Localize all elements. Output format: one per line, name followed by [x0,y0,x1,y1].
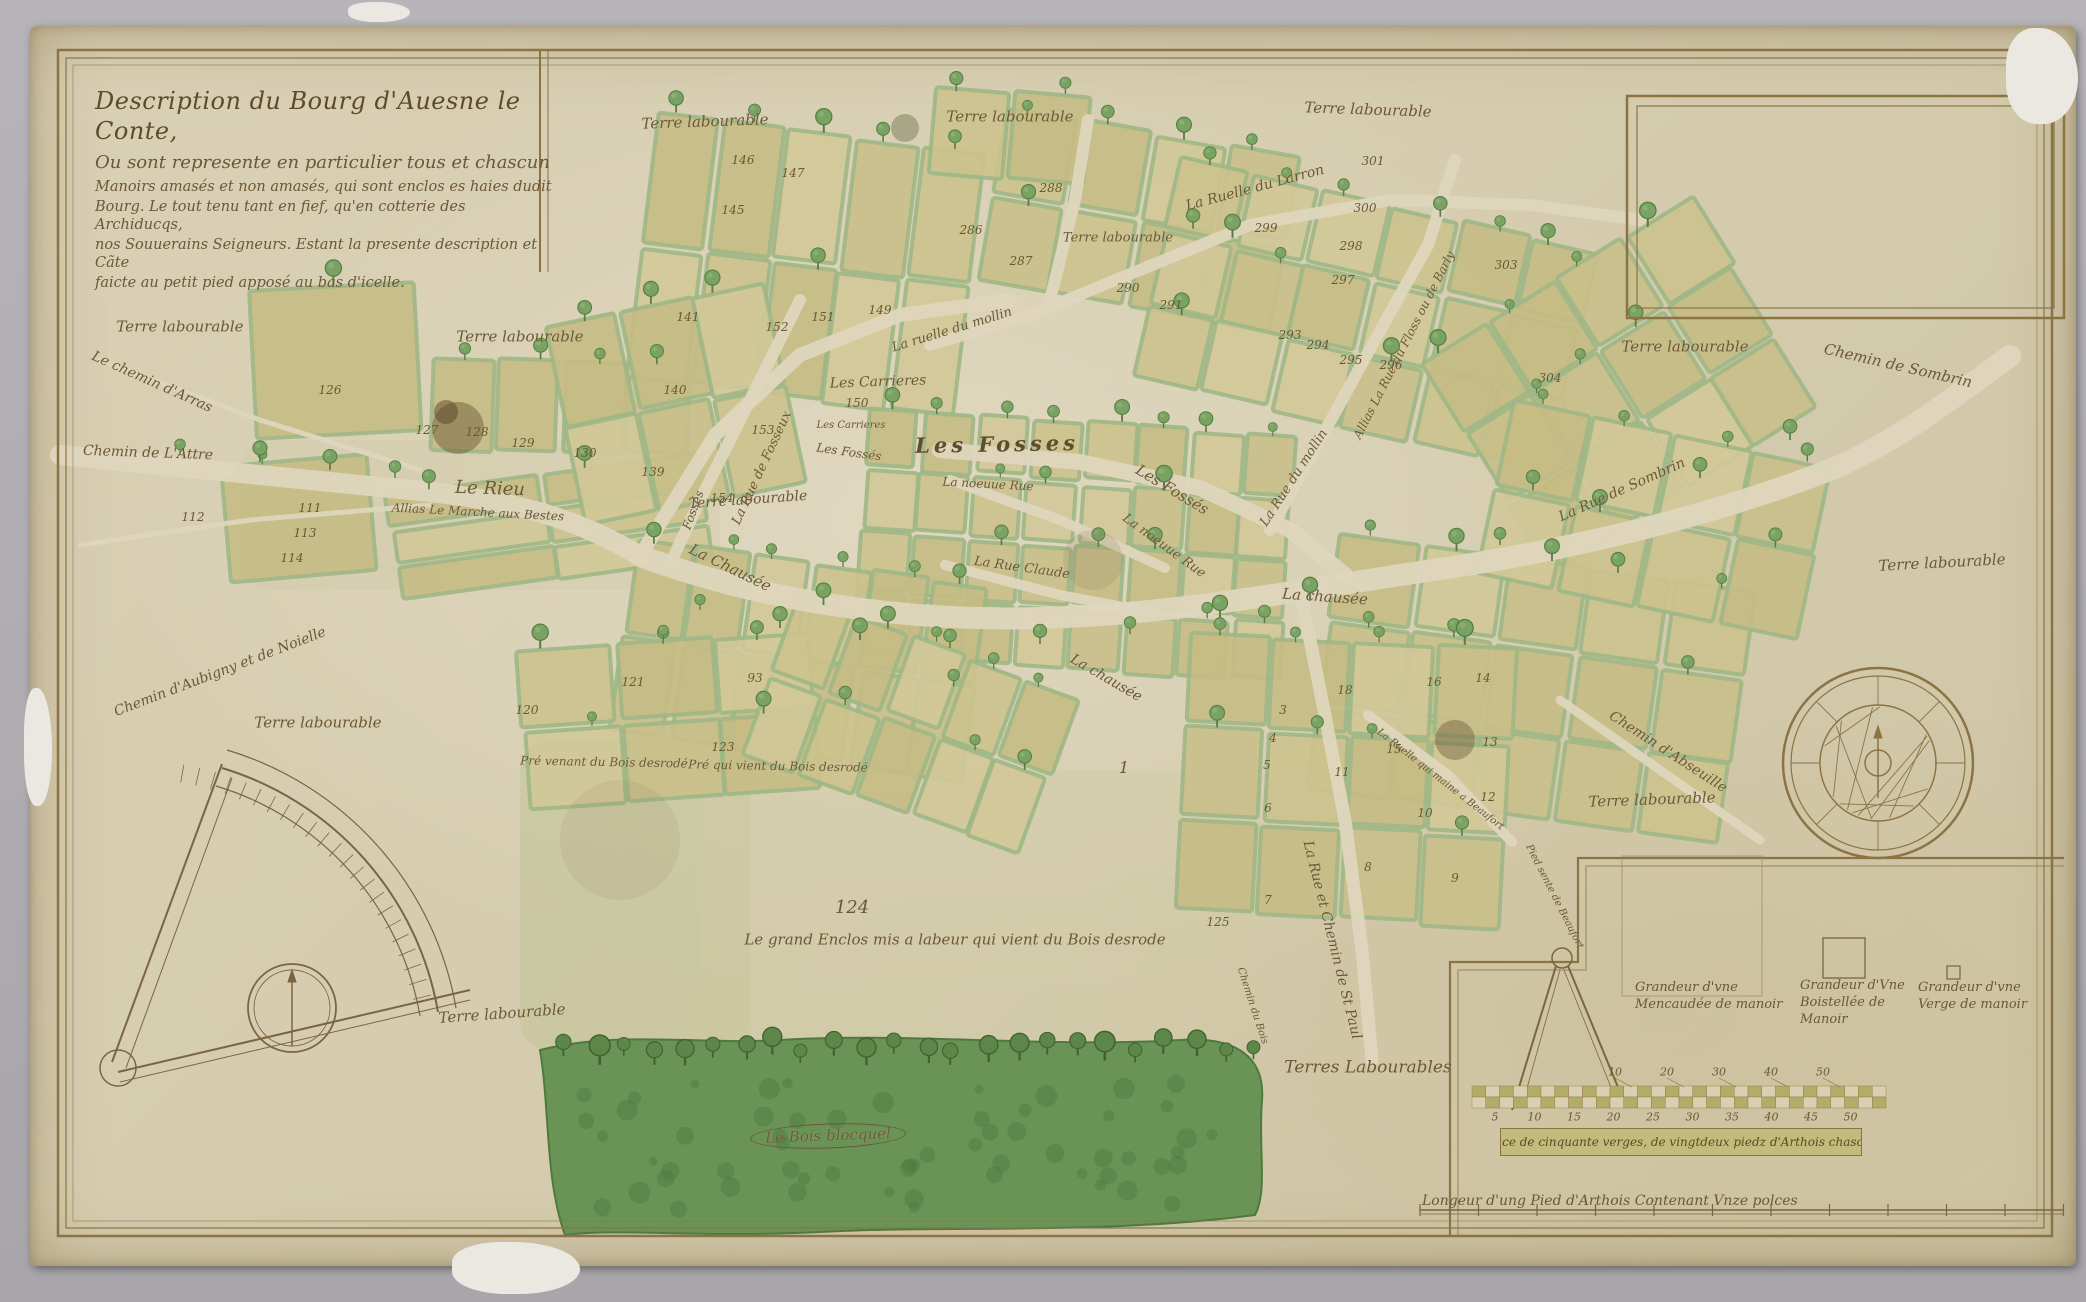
scale-bottom-tick: 50 [1844,1111,1858,1124]
parcel-number: 13 [1482,736,1497,748]
torn-paper-patch [24,688,52,806]
parcel-number: 146 [732,154,755,166]
scale-bottom-tick: 10 [1528,1111,1542,1124]
parcel-number: 126 [319,384,342,396]
parcel-number: 149 [869,304,892,316]
title-cartouche: Description du Bourg d'Auesne le Conte,O… [95,86,555,294]
boistellee-square [1823,938,1865,978]
torn-paper-patch [348,2,410,22]
area-label: Terre labourable [946,110,1073,125]
parcel-number: 286 [960,224,983,236]
parcel-number: 111 [299,502,322,514]
scale-bottom-tick: 30 [1686,1111,1700,1124]
parcel-number: 7 [1264,894,1272,906]
parcel-number: 127 [416,424,439,436]
parcel-number: 10 [1417,807,1432,819]
title-line: nos Souuerains Seigneurs. Estant la pres… [95,236,555,272]
parcel-number: 298 [1340,240,1363,252]
parcel-number: 141 [677,311,700,323]
parcel-number: 154 [711,492,734,504]
parcel-number: 1 [1119,760,1129,776]
scale-top-tick: 10 [1608,1066,1622,1079]
parcel-number: 9 [1451,872,1459,884]
place-label: Le grand Enclos mis a labeur qui vient d… [744,933,1165,948]
area-label: Terre labourable [1588,790,1716,809]
parcel-number: 152 [766,321,789,333]
area-label: Terres Labourables [1284,1060,1451,1077]
parcel-number: 296 [1380,359,1403,371]
title-line: Bourg. Le tout tenu tant en fief, qu'en … [95,198,555,234]
verge-scale-strip [1472,1078,1886,1108]
title-line: faicte au petit pied apposé au bas d'ice… [95,274,555,292]
protractor-icon [100,750,470,1086]
parcel-number: 5 [1263,759,1271,771]
parcel-number: 11 [1334,766,1349,778]
scale-bottom-tick: 35 [1725,1111,1739,1124]
parcel-number: 121 [622,676,645,688]
parcel-number: 124 [835,899,869,917]
place-label: Pré qui vient du Bois desrodé [688,758,868,773]
scale-bottom-tick: 40 [1765,1111,1779,1124]
scale-top-tick: 20 [1660,1066,1674,1079]
parcel-number: 15 [1386,743,1401,755]
parcel-number: 140 [664,384,687,396]
road-label: Les Carrieres [829,373,926,390]
parcel-number: 153 [752,424,775,436]
place-label: Pré venant du Bois desrodé [520,755,688,770]
parcel-number: 300 [1354,202,1377,214]
parcel-number: 112 [182,511,205,523]
parcel-number: 150 [846,397,869,409]
parcel-number: 120 [516,704,539,716]
scale-bottom-tick: 45 [1804,1111,1818,1124]
parcel-number: 8 [1364,861,1372,873]
parcel-number: 12 [1480,791,1495,803]
scale-bottom-tick: 15 [1567,1111,1581,1124]
parcel-number: 4 [1269,732,1277,744]
scale-bottom-tick: 5 [1492,1111,1499,1124]
parcel-number: 304 [1539,372,1562,384]
torn-paper-patch [2006,28,2078,124]
parcel-number: 129 [512,437,535,449]
parcel-number: 14 [1475,672,1490,684]
parcel-number: 287 [1010,255,1033,267]
parcel-number: 299 [1255,222,1278,234]
area-label: Terre labourable [116,320,243,335]
title-line: Ou sont represente en particulier tous e… [95,152,555,175]
parcel-number: 147 [782,167,805,179]
parcel-number: 18 [1337,684,1352,696]
parcel-number: 6 [1264,802,1272,814]
parcel-number: 125 [1207,916,1230,928]
legend-grandeur-verge: Grandeur d'vne Verge de manoir [1918,980,2038,1014]
parcel-number: 113 [294,527,317,539]
parcel-number: 114 [281,552,304,564]
area-label: Terre labourable [1621,340,1748,355]
dividers-icon [1512,948,1620,1110]
parcel-number: 291 [1160,299,1183,311]
parcel-number: 290 [1117,282,1140,294]
mencaudee-square [1622,856,1762,996]
scale-bottom-tick: 25 [1646,1111,1660,1124]
area-label: Terre labourable [254,716,381,731]
scale-top-tick: 50 [1816,1066,1830,1079]
scanned-map-page: Description du Bourg d'Auesne le Conte,O… [0,0,2086,1302]
parcel-number: 130 [574,447,597,459]
legend-grandeur-mencaudee: Grandeur d'vne Mencaudée de manoir [1635,980,1795,1014]
parcel-number: 16 [1426,676,1441,688]
parcel-number: 151 [812,311,835,323]
legend-pied-caption: Longeur d'ung Pied d'Arthois Contenant V… [1422,1192,1798,1210]
area-label: Terre labourable [456,330,583,345]
area-label: Terre labourable [1304,100,1432,119]
parcel-number: 93 [747,672,762,684]
area-label: Terre labourable [641,112,769,131]
compass-rosette-icon [1783,668,1973,858]
parcel-number: 301 [1362,155,1385,167]
parcel-number: 288 [1040,182,1063,194]
scale-top-tick: 40 [1764,1066,1778,1079]
title-line: Description du Bourg d'Auesne le Conte, [95,86,555,146]
parcel-number: 123 [712,741,735,753]
verge-square [1947,966,1960,979]
parcel-number: 293 [1279,329,1302,341]
title-line: Manoirs amasés et non amasés, qui sont e… [95,178,555,196]
parcel-number: 295 [1340,354,1363,366]
parcel-number: 303 [1495,259,1518,271]
legend-panel-border [1450,858,2064,1236]
parcel-number: 294 [1307,339,1330,351]
parcel-number: 145 [722,204,745,216]
parcel-number: 139 [642,466,665,478]
road-label: Le Rieu [455,479,525,499]
legend-grandeur-boistellee: Grandeur d'Vne Boistellée de Manoir [1800,978,1910,1029]
parcel-number: 128 [466,426,489,438]
scale-bottom-tick: 20 [1607,1111,1621,1124]
parcel-number: 3 [1279,704,1287,716]
parcel-number: 297 [1332,274,1355,286]
legend-espace-caption: Espace de cinquante verges, de vingtdeux… [1500,1128,1862,1156]
scale-top-tick: 30 [1712,1066,1726,1079]
torn-paper-patch [452,1242,580,1294]
legend-graphics [1420,856,2064,1216]
road-label: Les Carrieres [817,421,886,431]
area-label: Terre labourable [1063,232,1173,245]
road-label: Les Fosses [915,432,1079,456]
